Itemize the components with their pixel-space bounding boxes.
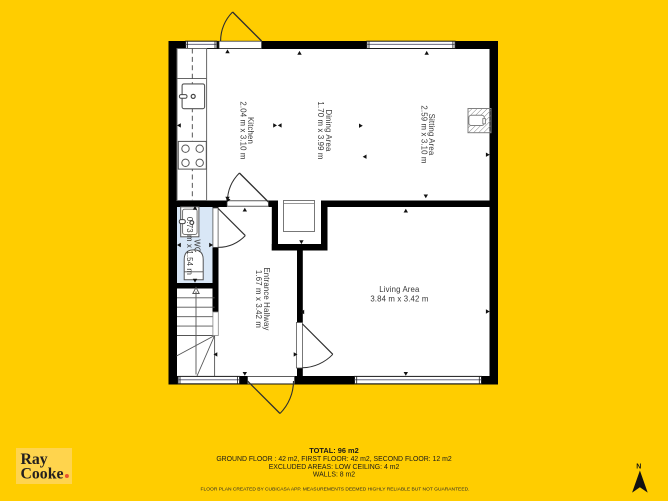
svg-text:WALLS: 8 m2: WALLS: 8 m2 (313, 472, 355, 479)
svg-text:3.84 m x 3.42 m: 3.84 m x 3.42 m (370, 295, 428, 304)
svg-text:FLOOR PLAN CREATED BY CUBICASA: FLOOR PLAN CREATED BY CUBICASA APP. MEAS… (201, 487, 470, 493)
svg-text:EXCLUDED AREAS: LOW CEILING: 4: EXCLUDED AREAS: LOW CEILING: 4 m2 (269, 464, 400, 471)
svg-text:GROUND FLOOR : 42 m2, FIRST FL: GROUND FLOOR : 42 m2, FIRST FLOOR: 42 m2… (216, 456, 452, 463)
svg-text:Cooke: Cooke (21, 465, 64, 482)
svg-text:Living Area: Living Area (379, 285, 420, 294)
svg-text:TOTAL: 96 m2: TOTAL: 96 m2 (309, 446, 358, 455)
svg-text:Entrance Hallway1.67 m x 3.42: Entrance Hallway1.67 m x 3.42 m (254, 267, 271, 330)
svg-text:Sitting Area2.59 m x 3.10 m: Sitting Area2.59 m x 3.10 m (419, 105, 436, 163)
svg-text:Dining Area1.70 m x 3.99 m: Dining Area1.70 m x 3.99 m (316, 101, 333, 159)
svg-text:N: N (636, 464, 641, 471)
